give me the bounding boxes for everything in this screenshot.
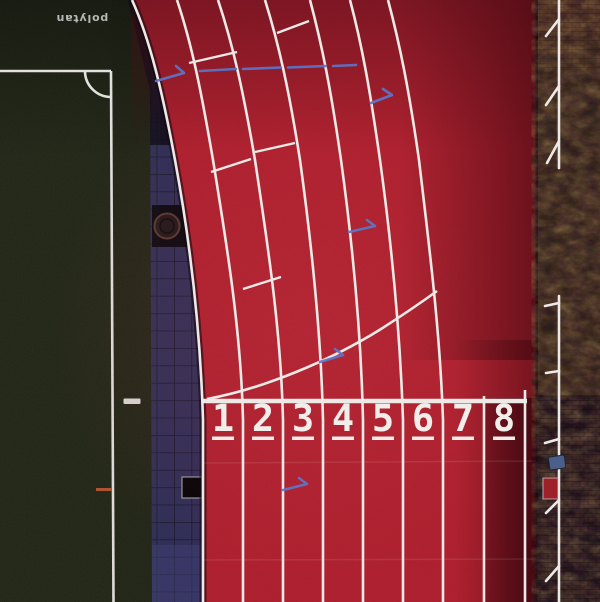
surface-brand-label: polytan [56,12,108,25]
number-underline [212,437,234,441]
aerial-photo: polytan [0,0,600,602]
track-scene: polytan [0,0,600,602]
number-underline [412,437,434,441]
blue-object [548,455,566,470]
number-underline [252,437,274,441]
number-underline [493,437,515,441]
lane-number-7: 7 [452,397,474,440]
lane-number-8: 8 [493,397,515,440]
lane-number-1: 1 [212,397,234,440]
ground-strip [538,0,600,602]
lane-number-4: 4 [332,397,354,440]
red-object [543,478,558,499]
number-underline [292,437,314,441]
surface-seam [203,559,540,560]
number-underline [372,437,394,441]
number-underline [452,437,474,441]
lane-number-6: 6 [412,397,434,440]
number-underline [332,437,354,441]
lane-number-5: 5 [372,397,394,440]
lane-number-2: 2 [252,397,274,440]
lane-number-3: 3 [292,397,314,440]
